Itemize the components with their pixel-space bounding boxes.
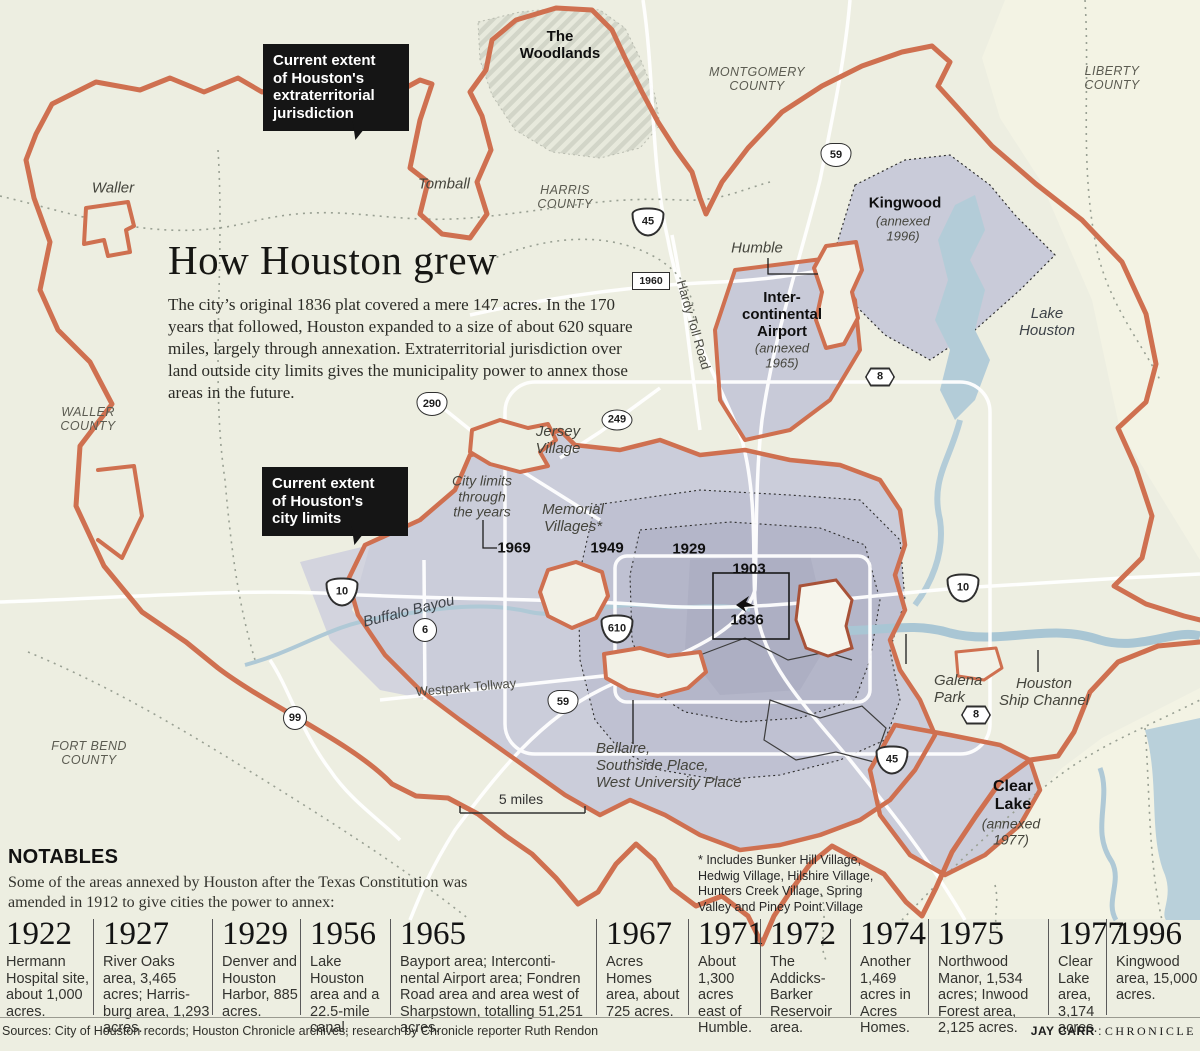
credit-org: CHRONICLE xyxy=(1105,1024,1196,1038)
infographic-how-houston-grew: How Houston grew The city’s original 183… xyxy=(0,0,1200,1051)
timeline-entry-1977: 1977Clear Lake area, 3,174 acres. xyxy=(1048,919,1108,1015)
road-sh6 xyxy=(424,560,425,700)
timeline-text: Kingwood area, 15,000 acres. xyxy=(1116,954,1200,1004)
timeline-year: 1922 xyxy=(6,919,90,950)
timeline-entry-1975: 1975Northwood Manor, 1,534 acres; Inwood… xyxy=(928,919,1048,1015)
timeline-entry-1967: 1967Acres Homes area, about 725 acres. xyxy=(596,919,688,1015)
footer: Sources: City of Houston records; Housto… xyxy=(0,1017,1200,1018)
annexation-timeline: 1922Hermann Hospital site, about 1,000 a… xyxy=(0,919,1200,1016)
credit-name: JAY CARR xyxy=(1031,1024,1095,1038)
timeline-text: Acres Homes area, about 725 acres. xyxy=(606,954,688,1020)
timeline-entry-1971: 1971About 1,300 acres east of Humble. xyxy=(688,919,760,1015)
timeline-year: 1972 xyxy=(770,919,850,950)
timeline-entry-1965: 1965Bayport area; Interconti-nental Airp… xyxy=(390,919,594,1015)
timeline-year: 1975 xyxy=(938,919,1048,950)
timeline-text: The Addicks-Barker Reservoir area. xyxy=(770,954,850,1037)
timeline-year: 1965 xyxy=(400,919,594,950)
timeline-entry-1972: 1972The Addicks-Barker Reservoir area. xyxy=(760,919,850,1015)
timeline-year: 1967 xyxy=(606,919,688,950)
notables-section: NOTABLES Some of the areas annexed by Ho… xyxy=(8,846,498,912)
timeline-year: 1974 xyxy=(860,919,928,950)
timeline-entry-1974: 1974Another 1,469 acres in Acres Homes. xyxy=(850,919,928,1015)
timeline-year: 1956 xyxy=(310,919,390,950)
notables-heading: NOTABLES xyxy=(8,846,498,869)
title-block: How Houston grew The city’s original 183… xyxy=(168,236,668,404)
timeline-entry-1927: 1927River Oaks area, 3,465 acres; Harris… xyxy=(93,919,211,1015)
galena-park-enclave xyxy=(796,580,852,656)
notables-intro: Some of the areas annexed by Houston aft… xyxy=(8,873,498,912)
timeline-year: 1996 xyxy=(1116,919,1200,950)
credit-separator: : xyxy=(1095,1024,1105,1038)
timeline-text: Denver and Houston Harbor, 885 acres. xyxy=(222,954,300,1020)
intro-paragraph: The city’s original 1836 plat covered a … xyxy=(168,294,650,404)
timeline-text: About 1,300 acres east of Humble. xyxy=(698,954,760,1037)
timeline-entry-1956: 1956Lake Houston area and a 22.5-mile ca… xyxy=(300,919,390,1015)
credit-line: JAY CARR : CHRONICLE xyxy=(1031,1024,1196,1039)
timeline-entry-1929: 1929Denver and Houston Harbor, 885 acres… xyxy=(212,919,300,1015)
timeline-year: 1927 xyxy=(103,919,211,950)
sources-line: Sources: City of Houston records; Housto… xyxy=(2,1024,598,1038)
timeline-entry-1922: 1922Hermann Hospital site, about 1,000 a… xyxy=(6,919,90,1015)
timeline-text: Hermann Hospital site, about 1,000 acres… xyxy=(6,954,90,1020)
timeline-entry-1996: 1996Kingwood area, 15,000 acres. xyxy=(1106,919,1200,1015)
memorial-villages-enclave xyxy=(540,562,608,628)
timeline-text: Another 1,469 acres in Acres Homes. xyxy=(860,954,928,1037)
page-title: How Houston grew xyxy=(168,236,668,284)
timeline-year: 1977 xyxy=(1058,919,1108,950)
timeline-year: 1971 xyxy=(698,919,760,950)
timeline-year: 1929 xyxy=(222,919,300,950)
